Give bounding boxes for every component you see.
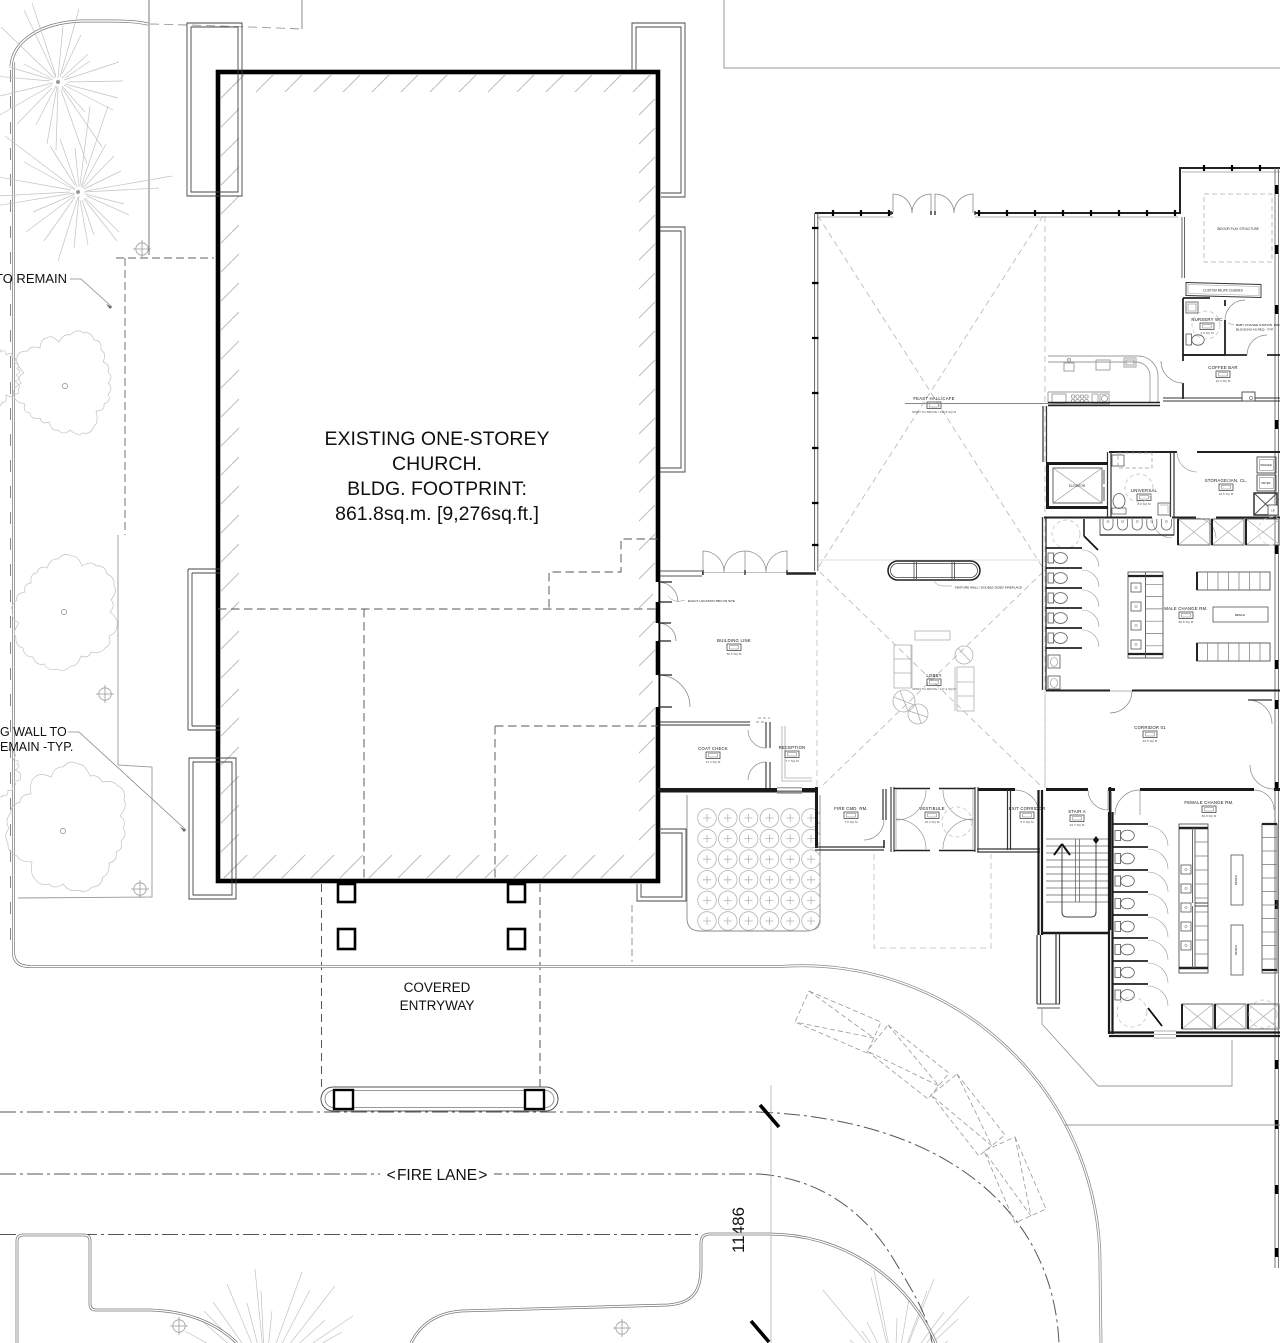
svg-text:EXISTING ONE-STOREY: EXISTING ONE-STOREY xyxy=(324,428,549,450)
svg-text:LOBBY: LOBBY xyxy=(926,673,941,678)
svg-text:4.9 SQ M: 4.9 SQ M xyxy=(1200,331,1213,335)
svg-text:8.0 SQ M: 8.0 SQ M xyxy=(1137,502,1150,506)
svg-text:UNIVERSAL: UNIVERSAL xyxy=(1131,488,1158,493)
svg-text:BABY CHANGE STATION. PROVIDE: BABY CHANGE STATION. PROVIDE xyxy=(1236,323,1280,327)
svg-text:EXIT CORRIDOR: EXIT CORRIDOR xyxy=(1009,806,1046,811)
svg-text:NURSERY WC: NURSERY WC xyxy=(1191,317,1222,322)
svg-text:MALE CHANGE RM.: MALE CHANGE RM. xyxy=(1164,606,1207,611)
svg-text:22.7 SQ M: 22.7 SQ M xyxy=(1070,823,1085,827)
svg-text:LR: LR xyxy=(1271,509,1274,513)
svg-text:RECEPTION: RECEPTION xyxy=(779,745,806,750)
svg-text:CORRIDOR 01: CORRIDOR 01 xyxy=(1134,725,1166,730)
svg-text:STAIR A: STAIR A xyxy=(1068,809,1086,814)
svg-text:COAT CHECK: COAT CHECK xyxy=(698,746,728,751)
svg-text:15.4 SQ M: 15.4 SQ M xyxy=(925,820,940,824)
svg-text:FEATURE WALL / DOUBLE SIDED FI: FEATURE WALL / DOUBLE SIDED FIREPLACE xyxy=(955,586,1022,590)
svg-text:OPEN TO ABOVE / 248.8 SQ M: OPEN TO ABOVE / 248.8 SQ M xyxy=(912,410,957,414)
svg-text:11486: 11486 xyxy=(729,1207,748,1253)
svg-text:80.8 SQ M: 80.8 SQ M xyxy=(1179,620,1194,624)
svg-text:INDOOR PLAY STRUCTURE: INDOOR PLAY STRUCTURE xyxy=(1217,227,1259,231)
svg-text:OPEN TO ABOVE / 117.4 SQ M: OPEN TO ABOVE / 117.4 SQ M xyxy=(912,687,956,691)
svg-text:BLOCKING AS REQ. -TYP.: BLOCKING AS REQ. -TYP. xyxy=(1236,328,1274,332)
svg-text:WASHER: WASHER xyxy=(1260,463,1271,467)
svg-text:7.7 SQ M: 7.7 SQ M xyxy=(785,759,798,763)
svg-text:FEMALE CHANGE RM.: FEMALE CHANGE RM. xyxy=(1184,800,1233,805)
svg-text:DRYER: DRYER xyxy=(1261,481,1270,485)
svg-text:CUSTOM MILWK.CUBBIES: CUSTOM MILWK.CUBBIES xyxy=(1203,289,1243,293)
svg-text:86.8 SQ M: 86.8 SQ M xyxy=(1202,814,1217,818)
svg-text:STORAGE/JAN. CL.: STORAGE/JAN. CL. xyxy=(1205,478,1248,483)
svg-text:10.4 SQ M: 10.4 SQ M xyxy=(1216,379,1231,383)
svg-text:BLDG. FOOTPRINT:: BLDG. FOOTPRINT: xyxy=(347,478,527,500)
svg-text:CHURCH.: CHURCH. xyxy=(392,453,482,475)
svg-text:EMAIN -TYP.: EMAIN -TYP. xyxy=(0,740,73,754)
svg-text:ELEVATOR: ELEVATOR xyxy=(1069,484,1086,488)
svg-text:VESTIBULE: VESTIBULE xyxy=(919,806,944,811)
svg-text:46.5 SQ M: 46.5 SQ M xyxy=(1143,739,1158,743)
svg-text:50.5 SQ M: 50.5 SQ M xyxy=(727,652,742,656)
svg-text:861.8sq.m. [9,276sq.ft.]: 861.8sq.m. [9,276sq.ft.] xyxy=(335,503,539,525)
svg-text:FIRE CMD. RM.: FIRE CMD. RM. xyxy=(834,806,868,811)
svg-text:BENCH: BENCH xyxy=(1234,945,1238,955)
svg-text:14.3 SQ M: 14.3 SQ M xyxy=(706,760,721,764)
svg-text:< FIRE LANE >: < FIRE LANE > xyxy=(387,1167,488,1184)
svg-text:COVERED: COVERED xyxy=(404,980,471,995)
svg-text:Y TO REMAIN: Y TO REMAIN xyxy=(0,271,67,286)
svg-text:5.0 SQ M: 5.0 SQ M xyxy=(1020,820,1033,824)
svg-text:COFFEE BAR: COFFEE BAR xyxy=(1208,365,1237,370)
svg-text:10.6 SQ M: 10.6 SQ M xyxy=(1219,492,1234,496)
svg-text:BENCH: BENCH xyxy=(1235,613,1245,617)
svg-text:BUILDING LINK: BUILDING LINK xyxy=(717,638,751,643)
svg-text:ENTRYWAY: ENTRYWAY xyxy=(400,998,475,1013)
svg-text:7.0 SQ M: 7.0 SQ M xyxy=(844,820,857,824)
svg-text:FEAST HALL/CAFE: FEAST HALL/CAFE xyxy=(913,396,954,401)
svg-text:BENCH: BENCH xyxy=(1234,875,1238,885)
svg-text:EXACT LOCATION TBD ON SITE: EXACT LOCATION TBD ON SITE xyxy=(688,599,735,603)
svg-text:G WALL TO: G WALL TO xyxy=(0,725,67,739)
